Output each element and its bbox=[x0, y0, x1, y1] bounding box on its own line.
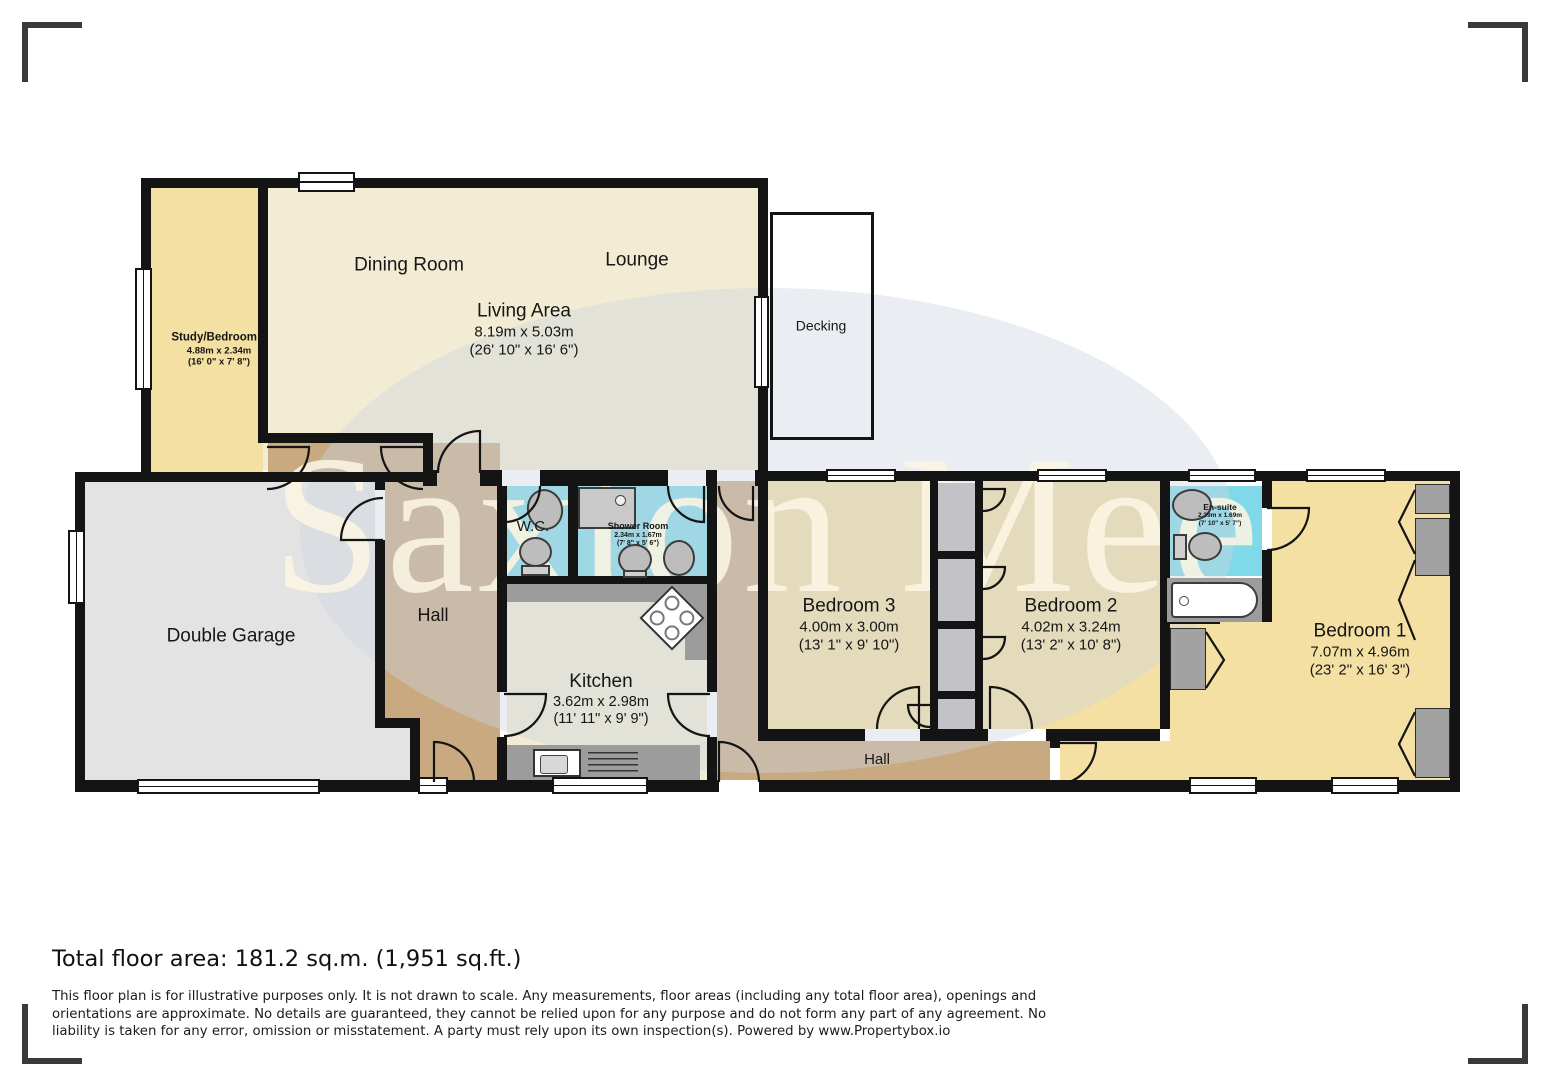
wall bbox=[497, 576, 717, 584]
label-wc: W.C. bbox=[517, 518, 550, 536]
label-lounge: Lounge bbox=[605, 250, 668, 273]
wardrobe bbox=[1170, 628, 1206, 690]
cupboard bbox=[938, 699, 975, 729]
wall bbox=[648, 780, 719, 792]
wall bbox=[375, 482, 385, 490]
wall bbox=[497, 486, 507, 692]
wall bbox=[920, 729, 988, 741]
label-shower-room: Shower Room 2.34m x 1.67m (7' 8" x 5' 6"… bbox=[608, 521, 669, 549]
window bbox=[826, 469, 896, 482]
window bbox=[1306, 469, 1386, 482]
label-garage: Double Garage bbox=[167, 626, 296, 649]
label-hall-center: Hall bbox=[417, 605, 448, 627]
floorplan-canvas: Saxton Mee bbox=[0, 0, 1544, 1080]
window bbox=[1331, 777, 1399, 794]
label-study: Study/Bedroom 4 4.88m x 2.34m (16' 0" x … bbox=[171, 332, 266, 369]
label-ensuite: En-suite 2.39m x 1.69m (7' 10" x 5' 7") bbox=[1198, 502, 1242, 528]
wc-toilet-tank-icon bbox=[521, 565, 550, 576]
wall bbox=[448, 780, 552, 792]
wall bbox=[1046, 729, 1160, 741]
wall bbox=[540, 470, 668, 486]
wall bbox=[1257, 780, 1331, 792]
label-decking: Decking bbox=[796, 318, 847, 335]
kitchen-sink-icon bbox=[533, 749, 581, 777]
wall bbox=[1050, 741, 1060, 748]
wall bbox=[758, 386, 768, 480]
wall bbox=[938, 691, 975, 699]
wall bbox=[1262, 481, 1272, 508]
wall bbox=[706, 470, 717, 486]
hall-corridor-floor bbox=[717, 481, 758, 741]
wall bbox=[75, 472, 85, 792]
wall bbox=[141, 178, 768, 188]
window bbox=[298, 172, 355, 192]
wall bbox=[758, 480, 768, 741]
wall bbox=[938, 551, 975, 559]
wall bbox=[759, 780, 1189, 792]
wardrobe bbox=[1415, 708, 1450, 778]
corner-bracket-bottom-left bbox=[22, 1004, 82, 1064]
window bbox=[68, 530, 85, 604]
total-floor-area: Total floor area: 181.2 sq.m. (1,951 sq.… bbox=[52, 946, 521, 972]
label-living-area: Living Area 8.19m x 5.03m (26' 10" x 16'… bbox=[470, 301, 579, 360]
ensuite-toilet-bowl-icon bbox=[1188, 532, 1222, 561]
wall bbox=[258, 188, 268, 443]
disclaimer-text: This floor plan is for illustrative purp… bbox=[52, 988, 1087, 1041]
window bbox=[418, 777, 448, 794]
wall bbox=[258, 433, 433, 443]
corner-bracket-bottom-right bbox=[1468, 1004, 1528, 1064]
wall bbox=[375, 718, 420, 728]
wall bbox=[75, 472, 430, 482]
corner-bracket-top-left bbox=[22, 22, 82, 82]
cupboard bbox=[938, 559, 975, 621]
bathtub-icon bbox=[1171, 582, 1258, 618]
wall bbox=[1262, 550, 1272, 622]
shower-toilet-base-icon bbox=[623, 570, 647, 578]
wc-toilet-bowl-icon bbox=[519, 537, 552, 567]
wall bbox=[758, 178, 768, 298]
window bbox=[1189, 777, 1257, 794]
room-bed1-c bbox=[1060, 741, 1180, 780]
cupboard bbox=[938, 629, 975, 691]
patio-door bbox=[754, 296, 769, 388]
window bbox=[1037, 469, 1107, 482]
room-garage-ext bbox=[375, 728, 410, 780]
wall bbox=[707, 486, 717, 692]
ensuite-toilet-tank-icon bbox=[1173, 534, 1187, 560]
kitchen-drainer-icon bbox=[588, 752, 638, 775]
label-bed3: Bedroom 3 4.00m x 3.00m (13' 1" x 9' 10"… bbox=[799, 596, 900, 655]
label-kitchen: Kitchen 3.62m x 2.98m (11' 11" x 9' 9") bbox=[553, 671, 649, 729]
wall bbox=[375, 540, 385, 718]
wall bbox=[75, 780, 137, 792]
cupboard bbox=[938, 483, 975, 551]
window bbox=[552, 777, 648, 794]
wardrobe bbox=[1415, 484, 1450, 514]
label-hall-bottom: Hall bbox=[864, 751, 890, 769]
label-dining-room: Dining Room bbox=[354, 255, 464, 278]
wardrobe bbox=[1415, 518, 1450, 576]
wall bbox=[568, 486, 578, 584]
garage-door bbox=[137, 779, 320, 794]
wall bbox=[320, 780, 418, 792]
wall bbox=[938, 621, 975, 629]
label-bed1: Bedroom 1 7.07m x 4.96m (23' 2" x 16' 3"… bbox=[1310, 621, 1411, 680]
window bbox=[135, 268, 152, 390]
label-bed2: Bedroom 2 4.02m x 3.24m (13' 2" x 10' 8"… bbox=[1021, 596, 1122, 655]
room-study bbox=[151, 188, 263, 472]
wall bbox=[480, 470, 502, 486]
wall bbox=[1450, 471, 1460, 792]
corner-bracket-top-right bbox=[1468, 22, 1528, 82]
wall bbox=[930, 481, 938, 729]
wall bbox=[975, 481, 983, 729]
wall bbox=[768, 729, 865, 741]
window bbox=[1188, 469, 1256, 482]
